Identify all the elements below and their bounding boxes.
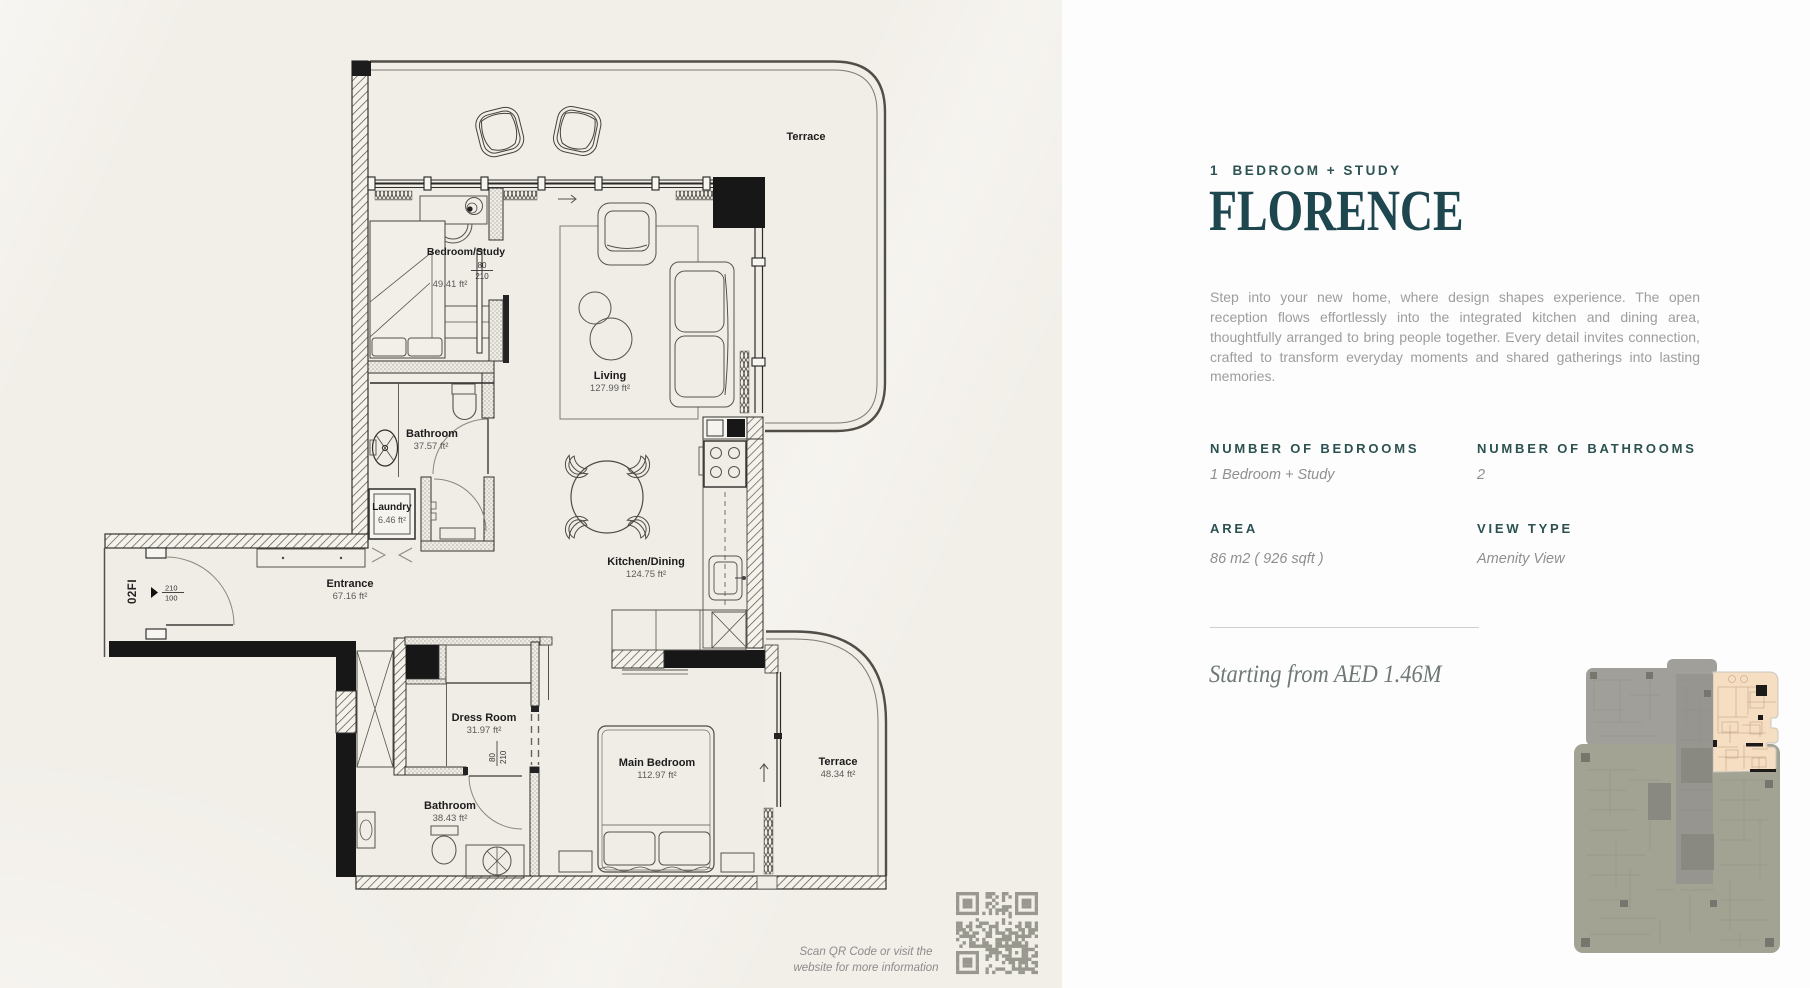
svg-text:80: 80: [488, 753, 497, 762]
svg-text:Laundry: Laundry: [372, 502, 412, 513]
svg-text:Bedroom/Study: Bedroom/Study: [427, 246, 505, 258]
svg-text:Bathroom: Bathroom: [406, 428, 458, 440]
svg-text:210: 210: [475, 272, 489, 281]
svg-text:67.16 ft²: 67.16 ft²: [333, 591, 368, 602]
svg-text:37.57 ft²: 37.57 ft²: [414, 441, 449, 452]
svg-text:Entrance: Entrance: [326, 578, 373, 590]
svg-text:210: 210: [499, 750, 508, 764]
svg-text:48.34 ft²: 48.34 ft²: [821, 769, 856, 780]
svg-text:Kitchen/Dining: Kitchen/Dining: [607, 556, 685, 568]
svg-text:112.97 ft²: 112.97 ft²: [637, 770, 676, 781]
svg-text:Main Bedroom: Main Bedroom: [619, 757, 696, 769]
svg-text:49.41 ft²: 49.41 ft²: [433, 279, 468, 290]
svg-text:124.75 ft²: 124.75 ft²: [626, 569, 666, 580]
svg-text:80: 80: [478, 261, 487, 270]
svg-text:127.99 ft²: 127.99 ft²: [590, 383, 630, 394]
svg-text:Dress Room: Dress Room: [452, 712, 517, 724]
svg-text:Bathroom: Bathroom: [424, 800, 476, 812]
svg-text:210: 210: [165, 584, 178, 593]
svg-text:31.97 ft²: 31.97 ft²: [467, 725, 502, 736]
svg-text:100: 100: [165, 594, 178, 603]
svg-text:Terrace: Terrace: [787, 131, 826, 143]
svg-text:Living: Living: [594, 370, 626, 382]
svg-text:02FI: 02FI: [127, 579, 139, 604]
svg-text:Terrace: Terrace: [819, 756, 858, 768]
svg-text:6.46 ft²: 6.46 ft²: [378, 515, 406, 525]
svg-text:38.43 ft²: 38.43 ft²: [433, 813, 468, 824]
